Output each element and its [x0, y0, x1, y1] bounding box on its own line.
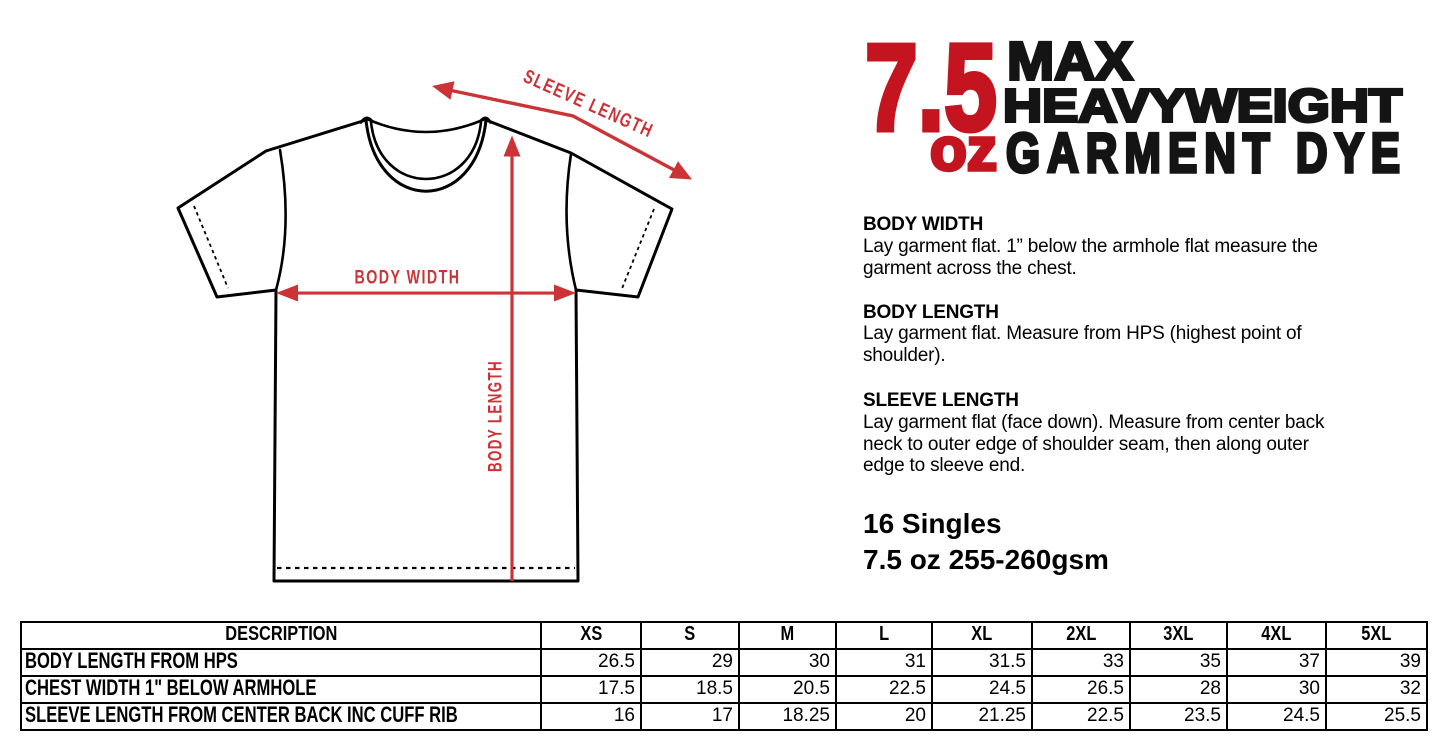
svg-text:SLEEVE LENGTH: SLEEVE LENGTH	[520, 65, 657, 142]
svg-text:GARMENT DYE: GARMENT DYE	[1006, 121, 1407, 184]
svg-text:oz: oz	[930, 116, 997, 183]
svg-text:BODY WIDTH: BODY WIDTH	[355, 267, 461, 289]
svg-text:BODY LENGTH: BODY LENGTH	[485, 360, 507, 472]
